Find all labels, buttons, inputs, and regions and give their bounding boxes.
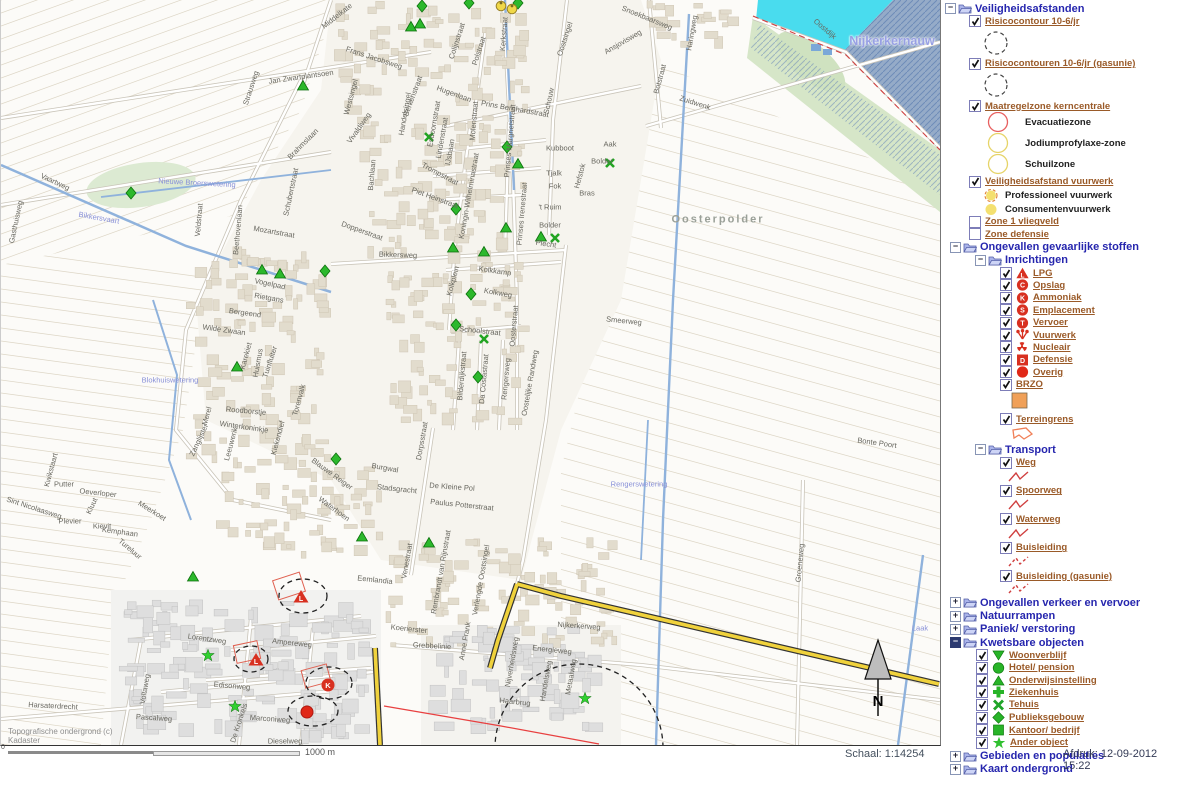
- copyright-note: Topografische ondergrond (c) Kadaster: [8, 727, 113, 745]
- legend-row-kantoor-bedrijf: Kantoor/ bedrijf: [945, 724, 1179, 736]
- legend-row-spoorweg: Spoorweg: [945, 485, 1179, 497]
- legend-row-consumentenvuurwerk: Consumentenvuurwerk: [945, 203, 1179, 216]
- legend-row-vuurwerk: Vuurwerk: [945, 329, 1179, 341]
- legend-row-risicocontour-10-6-jr: Risicocontour 10-6/jr: [945, 15, 1179, 27]
- legend-label-natuurrampen[interactable]: Natuurrampen: [980, 610, 1055, 622]
- legend-label-risicocontouren-10-6-jr-gasunie[interactable]: Risicocontouren 10-6/jr (gasunie): [985, 58, 1135, 69]
- legend-label-woonverblijf[interactable]: Woonverblijf: [1009, 650, 1066, 661]
- dot-orange-icon: [983, 188, 999, 203]
- layer-checkbox-zone-1-vliegveld[interactable]: [969, 216, 981, 228]
- legend-label-emplacement[interactable]: Emplacement: [1033, 305, 1095, 316]
- folder-icon: [988, 444, 1002, 455]
- legend-label-ammoniak[interactable]: Ammoniak: [1033, 292, 1082, 303]
- legend-label-vuurwerk[interactable]: Vuurwerk: [1033, 330, 1076, 341]
- expand-toggle-icon[interactable]: +: [950, 611, 961, 622]
- legend-row-woonverblijf: Woonverblijf: [945, 649, 1179, 661]
- layer-checkbox-risicocontouren-10-6-jr-gasunie[interactable]: [969, 58, 981, 70]
- zigzag-icon: [1007, 527, 1031, 541]
- legend-row-jodiumprofylaxe-zone: Jodiumprofylaxe-zone: [945, 133, 1179, 154]
- x-green-icon: [992, 699, 1005, 711]
- legend-row-inrichtingen: −Inrichtingen: [945, 254, 1179, 267]
- sq-green-icon: [992, 724, 1005, 736]
- legend-label-weg[interactable]: Weg: [1016, 457, 1036, 468]
- legend-label-ziekenhuis[interactable]: Ziekenhuis: [1009, 687, 1059, 698]
- legend-row-natuurrampen: +Natuurrampen: [945, 610, 1179, 623]
- legend-label-schuilzone: Schuilzone: [1025, 159, 1075, 170]
- expand-toggle-icon[interactable]: +: [950, 751, 961, 762]
- legend-row-defensie: DDefensie: [945, 354, 1179, 366]
- map-viewport[interactable]: LLK N MiddelkateFrans JacobswegJan Zwart…: [0, 0, 941, 746]
- legend-row-ongevallen-gevaarlijke-stoffen: −Ongevallen gevaarlijke stoffen: [945, 241, 1179, 254]
- legend-label-onderwijsinstelling[interactable]: Onderwijsinstelling: [1009, 675, 1097, 686]
- circ-c-icon: C: [1016, 279, 1029, 291]
- legend-label-transport[interactable]: Transport: [1005, 444, 1056, 456]
- legend-label-nucleair[interactable]: Nucleair: [1033, 342, 1071, 353]
- legend-row-maatregelzone-kerncentrale: Maatregelzone kerncentrale: [945, 100, 1179, 112]
- expand-toggle-icon[interactable]: +: [950, 624, 961, 635]
- diamond-green-icon: [992, 711, 1005, 724]
- legend-label-evacuatiezone: Evacuatiezone: [1025, 117, 1091, 128]
- legend-row-zone-1-vliegveld: Zone 1 vliegveld: [945, 216, 1179, 228]
- legend-label-lpg[interactable]: LPG: [1033, 268, 1053, 279]
- svg-text:K: K: [1020, 295, 1025, 302]
- legend-label-veiligheidsafstand-vuurwerk[interactable]: Veiligheidsafstand vuurwerk: [985, 176, 1113, 187]
- print-timestamp: Afdruk: 12-09-2012 15:22: [1063, 748, 1181, 772]
- legend-row-veiligheidsafstanden: −Veiligheidsafstanden: [945, 2, 1179, 15]
- layer-checkbox-lpg[interactable]: [1000, 267, 1012, 279]
- dashed-circle-icon: [981, 29, 1011, 57]
- legend-label-maatregelzone-kerncentrale[interactable]: Maatregelzone kerncentrale: [985, 101, 1110, 112]
- legend-label-kaart-ondergrond[interactable]: Kaart ondergrond: [980, 763, 1073, 775]
- scalebar-max-label: 1000 m: [305, 747, 335, 757]
- folder-icon: [963, 764, 977, 775]
- legend-row-risicocontouren-10-6-jr-gasunie: Risicocontouren 10-6/jr (gasunie): [945, 58, 1179, 70]
- legend-label-inrichtingen[interactable]: Inrichtingen: [1005, 254, 1068, 266]
- layer-checkbox-veiligheidsafstand-vuurwerk[interactable]: [969, 176, 981, 188]
- layer-checkbox-waterweg[interactable]: [1000, 513, 1012, 525]
- legend-row-weg: Weg: [945, 456, 1179, 468]
- north-arrow: N: [865, 640, 891, 716]
- legend-label-ongevallen-gevaarlijke-stoffen[interactable]: Ongevallen gevaarlijke stoffen: [980, 241, 1139, 253]
- svg-text:D: D: [1020, 358, 1025, 365]
- legend-row-publieksgebouw: Publieksgebouw: [945, 711, 1179, 724]
- legend-label-terreingrens[interactable]: Terreingrens: [1016, 414, 1073, 425]
- legend-label-kantoor-bedrijf[interactable]: Kantoor/ bedrijf: [1009, 725, 1080, 736]
- layer-checkbox-spoorweg[interactable]: [1000, 485, 1012, 497]
- layer-checkbox-kantoor-bedrijf[interactable]: [976, 724, 988, 736]
- map-marker-vuurwerk[interactable]: [507, 4, 517, 14]
- dot-green-icon: [992, 662, 1005, 674]
- north-label: N: [873, 693, 884, 710]
- legend-label-ander-object[interactable]: Ander object: [1010, 737, 1068, 748]
- folder-icon: [963, 611, 977, 622]
- legend-row-buisleiding: Buisleiding: [945, 542, 1179, 554]
- circ-t-icon: T: [1016, 317, 1029, 329]
- layer-checkbox-defensie[interactable]: [1000, 354, 1012, 366]
- legend-row-tehuis: Tehuis: [945, 699, 1179, 711]
- legend-label-buisleiding-gasunie[interactable]: Buisleiding (gasunie): [1016, 571, 1112, 582]
- legend-label-hotel-pension[interactable]: Hotel/ pension: [1009, 662, 1074, 673]
- layer-checkbox-terreingrens[interactable]: [1000, 413, 1012, 425]
- legend-label-opslag[interactable]: Opslag: [1033, 280, 1065, 291]
- fireworks-icon: [1016, 329, 1029, 341]
- map-marker-onderwijsinstelling[interactable]: [188, 572, 199, 582]
- dashed-circle-icon: [981, 71, 1011, 99]
- zigzag-icon: [1007, 470, 1031, 484]
- layer-checkbox-buisleiding-gasunie[interactable]: [1000, 570, 1012, 582]
- legend-row-zigzag: [945, 497, 1179, 513]
- svg-text:K: K: [325, 681, 331, 690]
- legend-label-overig[interactable]: Overig: [1033, 367, 1063, 378]
- legend-label-kwetsbare-objecten[interactable]: Kwetsbare objecten: [980, 637, 1084, 649]
- zigzag-dash-icon: [1007, 555, 1031, 569]
- tri-green-icon: [992, 675, 1005, 686]
- layer-checkbox-ziekenhuis[interactable]: [976, 686, 988, 698]
- expand-toggle-icon[interactable]: +: [950, 764, 961, 775]
- folder-icon: [963, 624, 977, 635]
- legend-row-lpg: LLPG: [945, 267, 1179, 279]
- legend-label-publieksgebouw[interactable]: Publieksgebouw: [1009, 712, 1084, 723]
- folder-icon: [963, 751, 977, 762]
- terrain-icon: [1011, 426, 1035, 442]
- folder-icon: [958, 3, 972, 14]
- legend-panel: −VeiligheidsafstandenRisicocontour 10-6/…: [945, 2, 1179, 776]
- svg-text:T: T: [1020, 320, 1025, 327]
- basemap-graphic: LLK N: [1, 0, 940, 745]
- legend-row-emplacement: SEmplacement: [945, 304, 1179, 316]
- folder-icon: [963, 597, 977, 608]
- legend-row-overig: Overig: [945, 366, 1179, 378]
- expand-toggle-icon[interactable]: −: [975, 255, 986, 266]
- legend-row-hotel-pension: Hotel/ pension: [945, 661, 1179, 673]
- scalebar-zero: 0: [1, 744, 5, 751]
- legend-row-nucleair: Nucleair: [945, 341, 1179, 353]
- sq-orange-icon: [1011, 392, 1029, 412]
- layer-checkbox-hotel-pension[interactable]: [976, 662, 988, 674]
- tri-down-green-icon: [992, 650, 1005, 661]
- legend-row-waterweg: Waterweg: [945, 513, 1179, 525]
- legend-label-consumentenvuurwerk: Consumentenvuurwerk: [1005, 204, 1111, 215]
- zigzag-dash-icon: [1007, 582, 1031, 596]
- layer-checkbox-overig[interactable]: [1000, 366, 1012, 378]
- svg-text:C: C: [1020, 283, 1025, 290]
- layer-checkbox-buisleiding[interactable]: [1000, 542, 1012, 554]
- circ-k-icon: K: [1016, 292, 1029, 304]
- expand-toggle-icon[interactable]: −: [950, 242, 961, 253]
- legend-row-terrain: [945, 425, 1179, 443]
- expand-toggle-icon[interactable]: −: [945, 3, 956, 14]
- layer-checkbox-vervoer[interactable]: [1000, 317, 1012, 329]
- layer-checkbox-nucleair[interactable]: [1000, 341, 1012, 353]
- nuclear-icon: [1016, 341, 1029, 353]
- legend-row-onderwijsinstelling: Onderwijsinstelling: [945, 674, 1179, 686]
- layer-checkbox-risicocontour-10-6-jr[interactable]: [969, 15, 981, 27]
- legend-label-vervoer[interactable]: Vervoer: [1033, 317, 1068, 328]
- legend-row-zigzag: [945, 469, 1179, 485]
- legend-row-ziekenhuis: Ziekenhuis: [945, 686, 1179, 698]
- layer-checkbox-emplacement[interactable]: [1000, 304, 1012, 316]
- legend-row-dashed-circle: [945, 70, 1179, 100]
- layer-checkbox-tehuis[interactable]: [976, 699, 988, 711]
- scale-text: Schaal: 1:14254: [845, 748, 925, 760]
- legend-label-defensie[interactable]: Defensie: [1033, 354, 1073, 365]
- layer-checkbox-zone-defensie[interactable]: [969, 228, 981, 240]
- sq-d-icon: D: [1016, 354, 1029, 366]
- legend-label-jodiumprofylaxe-zone: Jodiumprofylaxe-zone: [1025, 138, 1126, 149]
- layer-checkbox-ammoniak[interactable]: [1000, 292, 1012, 304]
- layer-checkbox-opslag[interactable]: [1000, 279, 1012, 291]
- legend-label-risicocontour-10-6-jr[interactable]: Risicocontour 10-6/jr: [985, 16, 1080, 27]
- plus-green-icon: [992, 686, 1005, 698]
- layer-checkbox-publieksgebouw[interactable]: [976, 712, 988, 724]
- folder-icon: [988, 255, 1002, 266]
- layer-checkbox-ander-object[interactable]: [976, 737, 988, 749]
- circle-red-icon: [983, 112, 1015, 133]
- legend-row-ammoniak: KAmmoniak: [945, 292, 1179, 304]
- layer-checkbox-woonverblijf[interactable]: [976, 649, 988, 661]
- zigzag-icon: [1007, 498, 1031, 512]
- layer-checkbox-brzo[interactable]: [1000, 379, 1012, 391]
- layer-checkbox-maatregelzone-kerncentrale[interactable]: [969, 100, 981, 112]
- legend-row-zone-defensie: Zone defensie: [945, 228, 1179, 240]
- svg-text:L: L: [299, 596, 304, 603]
- copyright-line1: Topografische ondergrond (c): [8, 727, 113, 736]
- map-marker-overig[interactable]: [301, 706, 313, 718]
- scalebar: [8, 751, 298, 755]
- print-preview-page: { "page": { "scale_text": "Schaal: 1:142…: [0, 0, 1181, 787]
- legend-row-vervoer: TVervoer: [945, 316, 1179, 328]
- legend-row-zigzag: [945, 526, 1179, 542]
- legend-row-transport: −Transport: [945, 443, 1179, 456]
- legend-row-sq-orange: [945, 391, 1179, 413]
- layer-checkbox-vuurwerk[interactable]: [1000, 329, 1012, 341]
- legend-label-paniek-verstoring[interactable]: Paniek/ verstoring: [980, 623, 1075, 635]
- legend-row-terreingrens: Terreingrens: [945, 413, 1179, 425]
- legend-label-brzo[interactable]: BRZO: [1016, 379, 1043, 390]
- legend-label-spoorweg[interactable]: Spoorweg: [1016, 485, 1062, 496]
- svg-text:L: L: [1021, 272, 1025, 279]
- legend-row-ongevallen-verkeer-en-vervoer: +Ongevallen verkeer en vervoer: [945, 596, 1179, 609]
- layer-checkbox-weg[interactable]: [1000, 457, 1012, 469]
- circ-s-icon: S: [1016, 304, 1029, 316]
- expand-toggle-icon[interactable]: −: [975, 444, 986, 455]
- expand-toggle-icon[interactable]: −: [950, 637, 961, 648]
- legend-label-veiligheidsafstanden[interactable]: Veiligheidsafstanden: [975, 3, 1084, 15]
- legend-row-opslag: COpslag: [945, 279, 1179, 291]
- expand-toggle-icon[interactable]: +: [950, 597, 961, 608]
- legend-row-evacuatiezone: Evacuatiezone: [945, 112, 1179, 133]
- legend-label-zone-1-vliegveld[interactable]: Zone 1 vliegveld: [985, 216, 1059, 227]
- legend-row-zigzag-dash: [945, 582, 1179, 596]
- star-green-icon: [992, 736, 1006, 749]
- layer-checkbox-onderwijsinstelling[interactable]: [976, 674, 988, 686]
- legend-label-waterweg[interactable]: Waterweg: [1016, 514, 1061, 525]
- legend-label-zone-defensie[interactable]: Zone defensie: [985, 229, 1049, 240]
- svg-text:L: L: [254, 659, 259, 666]
- map-marker-vuurwerk[interactable]: [496, 1, 506, 11]
- copyright-line2: Kadaster: [8, 736, 113, 745]
- legend-row-veiligheidsafstand-vuurwerk: Veiligheidsafstand vuurwerk: [945, 175, 1179, 187]
- circle-yellow-icon: [983, 154, 1015, 175]
- legend-row-schuilzone: Schuilzone: [945, 154, 1179, 175]
- legend-row-dashed-circle: [945, 28, 1179, 58]
- dot-red-icon: [1016, 366, 1029, 378]
- legend-row-paniek-verstoring: +Paniek/ verstoring: [945, 623, 1179, 636]
- legend-row-kwetsbare-objecten: −Kwetsbare objecten: [945, 636, 1179, 649]
- legend-label-professioneel-vuurwerk: Professioneel vuurwerk: [1005, 190, 1112, 201]
- folder-icon: [963, 637, 977, 648]
- legend-row-professioneel-vuurwerk: Professioneel vuurwerk: [945, 188, 1179, 203]
- legend-label-buisleiding[interactable]: Buisleiding: [1016, 542, 1067, 553]
- legend-label-ongevallen-verkeer-en-vervoer[interactable]: Ongevallen verkeer en vervoer: [980, 597, 1140, 609]
- legend-row-zigzag-dash: [945, 554, 1179, 570]
- legend-row-buisleiding-gasunie: Buisleiding (gasunie): [945, 570, 1179, 582]
- dot-yellow-icon: [983, 203, 999, 216]
- folder-icon: [963, 242, 977, 253]
- tri-lpg-icon: L: [1016, 267, 1029, 279]
- circle-yellow-icon: [983, 133, 1015, 154]
- legend-row-brzo: BRZO: [945, 378, 1179, 390]
- svg-text:S: S: [1020, 308, 1025, 315]
- legend-label-tehuis[interactable]: Tehuis: [1009, 699, 1039, 710]
- map-marker-ammoniak[interactable]: K: [322, 679, 335, 692]
